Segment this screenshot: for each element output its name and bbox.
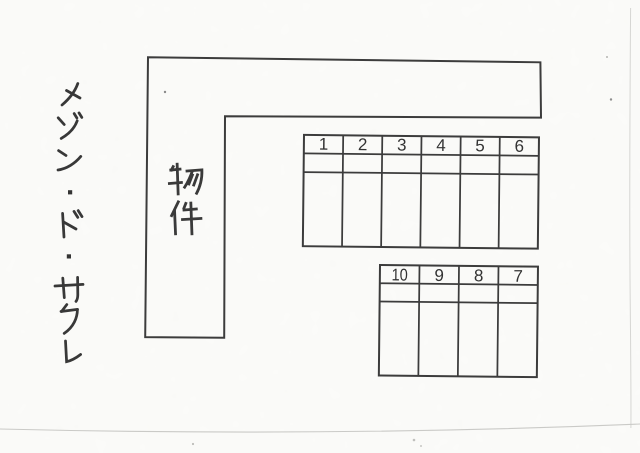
svg-text:5: 5 (475, 136, 485, 155)
svg-text:1: 1 (319, 135, 329, 154)
svg-text:4: 4 (436, 136, 446, 155)
svg-text:7: 7 (513, 267, 523, 286)
svg-text:2: 2 (358, 135, 368, 154)
svg-text:3: 3 (397, 135, 407, 154)
svg-text:9: 9 (434, 266, 444, 285)
svg-text:8: 8 (474, 266, 484, 285)
svg-text:6: 6 (514, 137, 524, 156)
svg-text:10: 10 (391, 265, 407, 284)
